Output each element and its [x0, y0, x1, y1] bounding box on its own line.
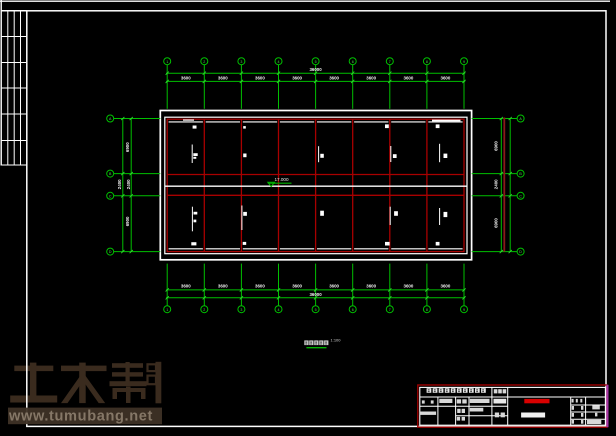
svg-text:3600: 3600 [218, 284, 228, 289]
svg-text:4: 4 [278, 60, 280, 64]
svg-text:3: 3 [240, 308, 242, 312]
svg-text:6: 6 [352, 60, 354, 64]
svg-text:2400: 2400 [117, 179, 122, 189]
svg-text:5: 5 [315, 60, 317, 64]
svg-text:2: 2 [203, 308, 205, 312]
svg-text:3600: 3600 [181, 76, 191, 81]
svg-text:9: 9 [463, 308, 465, 312]
svg-text:6900: 6900 [125, 216, 130, 226]
svg-text:3600: 3600 [366, 284, 376, 289]
svg-text:3600: 3600 [181, 284, 191, 289]
svg-text:D: D [109, 250, 112, 254]
svg-text:3: 3 [240, 60, 242, 64]
svg-text:6900: 6900 [494, 141, 499, 151]
svg-text:36000: 36000 [309, 292, 322, 297]
svg-text:3600: 3600 [218, 76, 228, 81]
svg-text:C: C [109, 194, 112, 198]
svg-text:8: 8 [426, 308, 428, 312]
svg-text:3600: 3600 [441, 76, 451, 81]
svg-text:1: 1 [166, 60, 168, 64]
svg-text:3600: 3600 [255, 76, 265, 81]
svg-text:3600: 3600 [255, 284, 265, 289]
svg-text:2: 2 [203, 60, 205, 64]
svg-text:3600: 3600 [404, 76, 414, 81]
svg-text:4: 4 [278, 308, 280, 312]
svg-text:17.000: 17.000 [274, 177, 288, 182]
svg-text:6900: 6900 [494, 218, 499, 228]
svg-text:6900: 6900 [125, 142, 130, 152]
svg-text:www.tumubang.net: www.tumubang.net [8, 408, 153, 424]
svg-text:3600: 3600 [292, 284, 302, 289]
svg-text:2400: 2400 [494, 179, 499, 189]
svg-text:6: 6 [352, 308, 354, 312]
svg-text:3600: 3600 [404, 284, 414, 289]
svg-text:8: 8 [426, 60, 428, 64]
svg-text:D: D [519, 250, 522, 254]
svg-text:5: 5 [315, 308, 317, 312]
svg-text:3600: 3600 [292, 76, 302, 81]
svg-text:9: 9 [463, 60, 465, 64]
svg-text:1:100: 1:100 [331, 338, 342, 343]
svg-text:1: 1 [166, 308, 168, 312]
svg-text:C: C [519, 194, 522, 198]
svg-text:7: 7 [389, 60, 391, 64]
svg-text:3600: 3600 [329, 76, 339, 81]
svg-text:3600: 3600 [329, 284, 339, 289]
svg-text:3600: 3600 [366, 76, 376, 81]
svg-text:36000: 36000 [309, 67, 322, 72]
svg-text:3600: 3600 [441, 284, 451, 289]
svg-text:2400: 2400 [126, 179, 131, 189]
svg-text:7: 7 [389, 308, 391, 312]
